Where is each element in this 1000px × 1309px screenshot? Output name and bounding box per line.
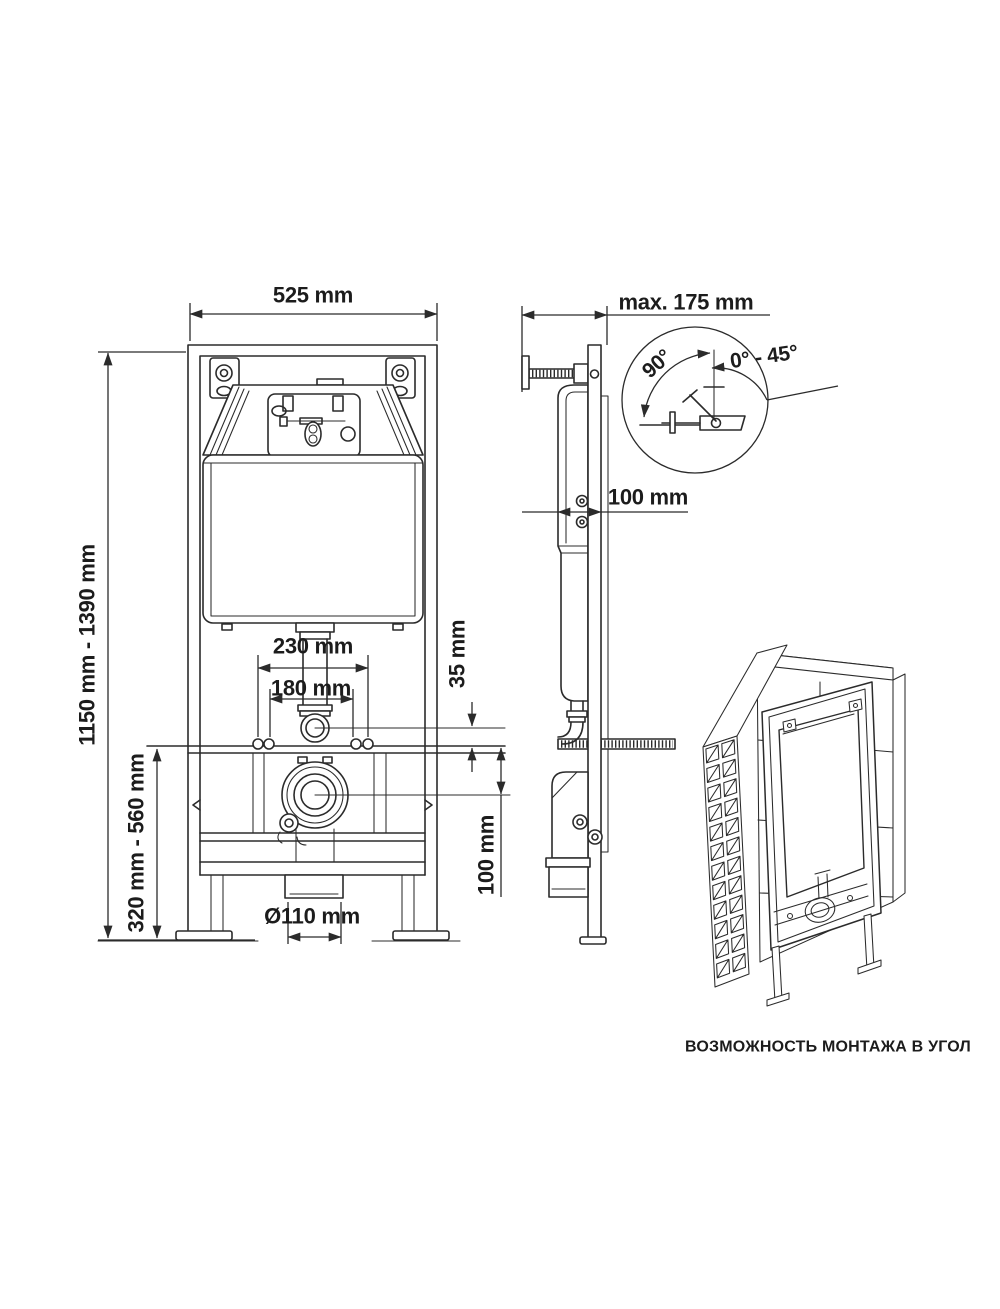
frame-rail-side [588, 345, 601, 938]
installation-frame-drawing: 525 mm 1150 mm - 1390 mm 320 mm - 560 mm [0, 0, 1000, 1309]
front-view: 525 mm 1150 mm - 1390 mm 320 mm - 560 mm [75, 283, 511, 945]
dim-wall-distance-label: 100 mm [608, 485, 688, 510]
dim-frame-height-label: 1150 mm - 1390 mm [75, 544, 100, 746]
dim-depth-max-label: max. 175 mm [619, 290, 754, 315]
technical-drawing-page: 525 mm 1150 mm - 1390 mm 320 mm - 560 mm [0, 0, 1000, 1309]
drain-outlet-front [278, 757, 348, 862]
dim-bolt-spacing-inner-label: 180 mm [271, 676, 351, 701]
dim-flush-offset-label: 35 mm [445, 620, 470, 688]
dim-lower-height-label: 320 mm - 560 mm [124, 754, 149, 933]
dim-drain-diameter-label: Ø110 mm [264, 904, 360, 929]
anchor-angle-detail: 90° 0° - 45° [622, 327, 838, 473]
cistern-side [558, 385, 588, 744]
corner-mounting-illustration: ВОЗМОЖНОСТЬ МОНТАЖА В УГОЛ [685, 645, 971, 1056]
corner-mounting-caption: ВОЗМОЖНОСТЬ МОНТАЖА В УГОЛ [685, 1039, 971, 1056]
dim-drain-offset-label: 100 mm [474, 815, 499, 895]
dim-anchor-angle-range-label: 0° - 45° [729, 341, 800, 373]
dim-bolt-spacing-outer-label: 230 mm [273, 634, 353, 659]
drain-template [285, 875, 343, 898]
corner-frame [762, 682, 881, 1006]
cistern-front [203, 379, 423, 630]
dim-anchor-angle-label: 90° [638, 345, 676, 383]
dim-frame-width-label: 525 mm [273, 283, 353, 308]
